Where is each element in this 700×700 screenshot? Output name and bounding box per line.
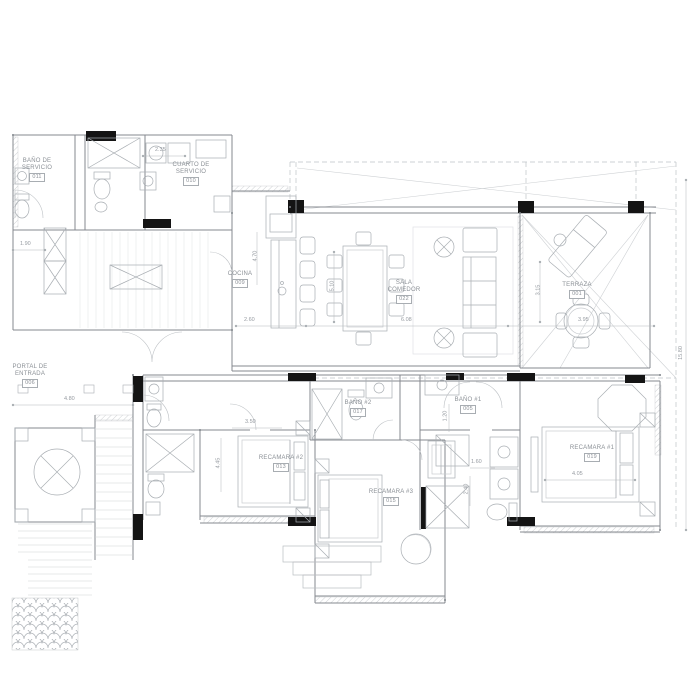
room-label-recamara2: RECAMARA #2 013 xyxy=(249,455,313,472)
room-tag: 005 xyxy=(460,405,476,414)
dimension-text: 4.45 xyxy=(215,458,221,469)
dimension-text: 2.40 xyxy=(463,484,469,495)
room-label-cuarto-servicio: CUARTO DE SERVICIO 010 xyxy=(168,162,214,186)
room-name: PORTAL DE ENTRADA xyxy=(12,364,47,377)
room-name: BAÑO #1 xyxy=(455,397,482,403)
room-tag: 017 xyxy=(350,408,366,417)
room-label-cocina: COCINA 009 xyxy=(218,271,262,288)
dimension-text: 3.95 xyxy=(578,317,589,323)
room-label-bano-servicio: BAÑO DE SERVICIO 011 xyxy=(16,158,58,182)
room-tag: 009 xyxy=(232,279,248,288)
roof-diagonals xyxy=(297,166,676,378)
room-name: BAÑO DE SERVICIO xyxy=(22,158,52,171)
dimension-text: 5.10 xyxy=(329,281,335,292)
dimension-text: 3.50 xyxy=(245,419,256,425)
room-label-sala-comedor: SALA COMEDOR 022 xyxy=(382,280,426,304)
room-label-portal-entrada: PORTAL DE ENTRADA 006 xyxy=(6,364,54,388)
room-label-recamara1: RECAMARA #1 019 xyxy=(560,445,624,462)
room-name: CUARTO DE SERVICIO xyxy=(173,162,210,175)
room-name: TERRAZA xyxy=(562,282,591,288)
entrance-porch xyxy=(15,428,95,522)
room-name: RECAMARA #2 xyxy=(259,455,303,461)
fishscale-paving xyxy=(12,598,78,650)
living-furniture xyxy=(413,227,513,357)
room-tag: 001 xyxy=(569,290,585,299)
stair-hall xyxy=(80,232,208,328)
dimension-text: 15.80 xyxy=(678,346,684,360)
room-name: SALA COMEDOR xyxy=(388,280,421,293)
stair-hall-boxes xyxy=(44,228,162,294)
dimension-text: 4.80 xyxy=(64,396,75,402)
dimension-text: 1.90 xyxy=(20,241,31,247)
room-label-recamara3: RECAMARA #3 015 xyxy=(359,489,423,506)
room-tag: 013 xyxy=(273,463,289,472)
room-name: RECAMARA #3 xyxy=(369,489,413,495)
room-label-terraza: TERRAZA 001 xyxy=(553,282,601,299)
room-tag: 022 xyxy=(396,295,412,304)
room-name: BAÑO #2 xyxy=(345,400,372,406)
dimension-text: 1.20 xyxy=(442,411,448,422)
kitchen-furniture xyxy=(266,196,315,328)
dimension-lines xyxy=(12,155,687,531)
bottom-steps xyxy=(283,546,381,588)
dimension-text: 2.60 xyxy=(244,317,255,323)
vestibule-bath-fixtures xyxy=(145,377,194,515)
dimension-text: 3.15 xyxy=(535,285,541,296)
room-tag: 015 xyxy=(383,497,399,506)
exterior-stairs xyxy=(18,420,133,595)
room-tag: 019 xyxy=(584,453,600,462)
dimension-text: 4.05 xyxy=(572,471,583,477)
wall-poche xyxy=(86,131,645,540)
room-name: COCINA xyxy=(228,271,253,277)
room-name: RECAMARA #1 xyxy=(570,445,614,451)
plan-linework xyxy=(0,0,700,700)
room-label-bano1: BAÑO #1 005 xyxy=(446,397,490,414)
floor-plan-canvas: BAÑO DE SERVICIO 011 CUARTO DE SERVICIO … xyxy=(0,0,700,700)
room-tag: 010 xyxy=(183,177,199,186)
dimension-text: 4.70 xyxy=(252,251,258,262)
room-tag: 006 xyxy=(22,379,38,388)
room-label-bano2: BAÑO #2 017 xyxy=(336,400,380,417)
dimension-text: 2.35 xyxy=(155,147,166,153)
room-tag: 011 xyxy=(29,173,44,182)
dimension-text: 1.60 xyxy=(471,459,482,465)
dimension-text: 6.08 xyxy=(401,317,412,323)
